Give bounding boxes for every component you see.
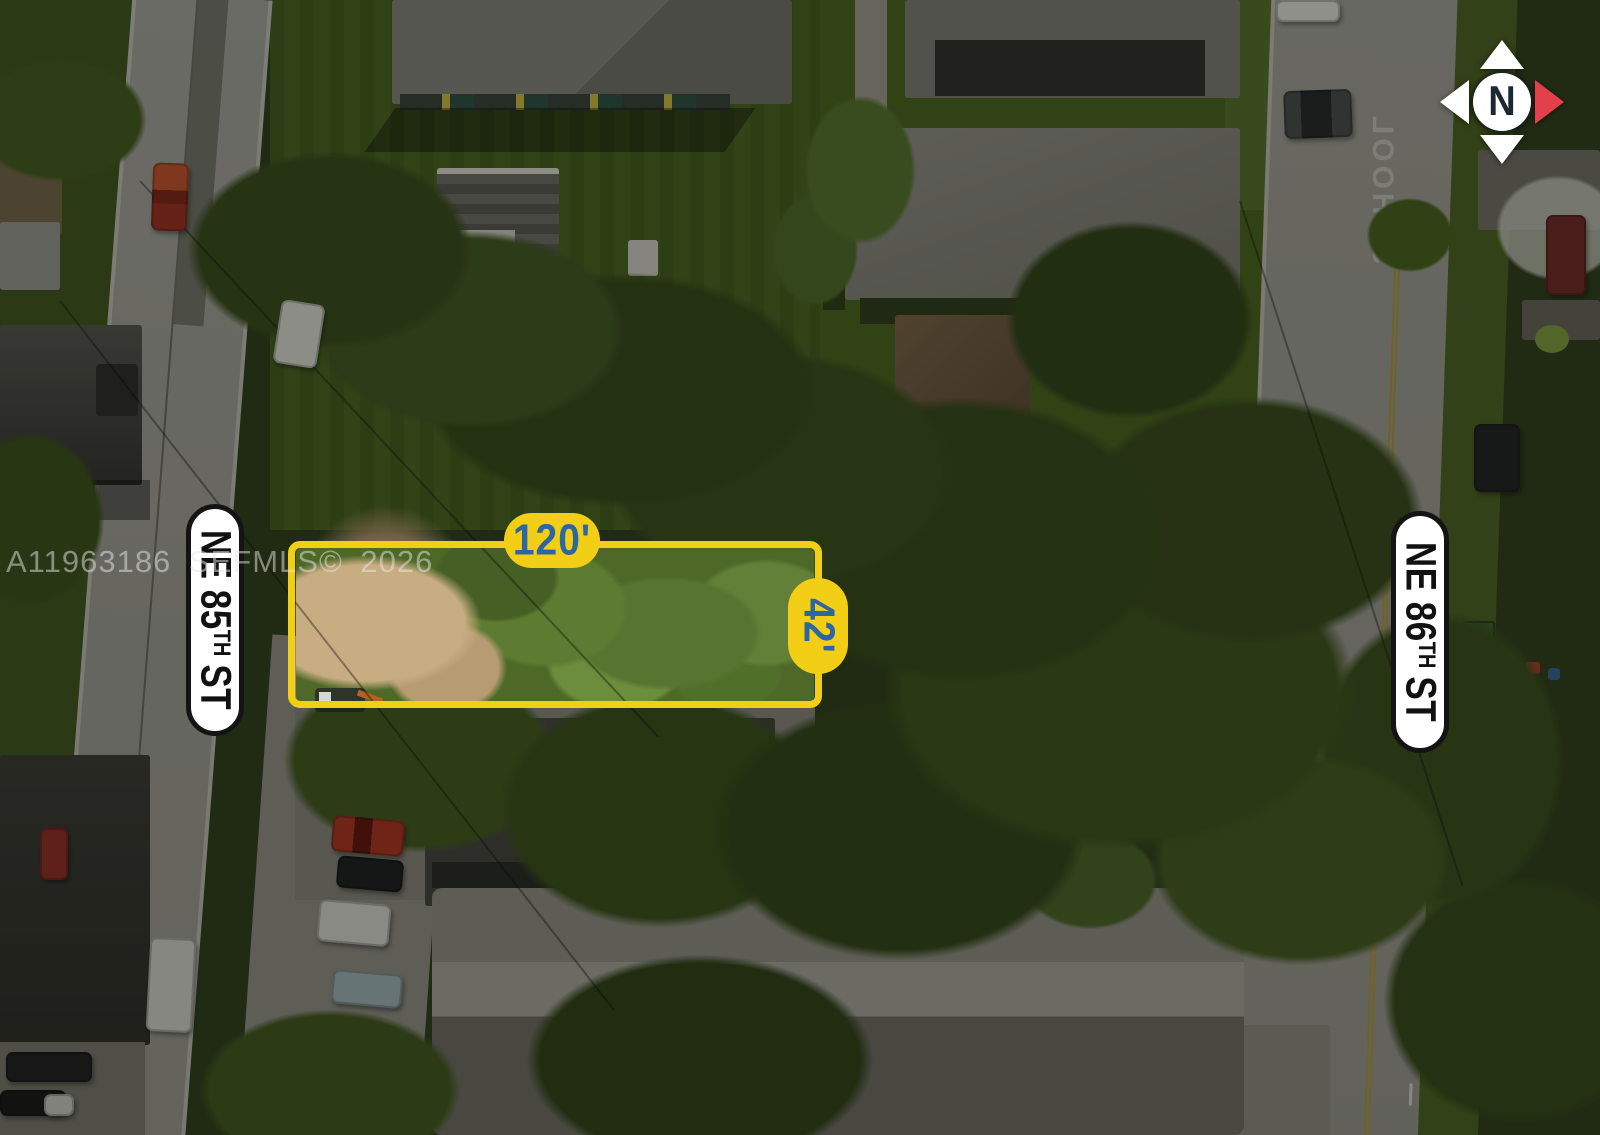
lot-depth-label: 42' [788,578,848,674]
compass-north-arrow-icon [1535,80,1564,124]
compass-letter: N [1488,78,1515,125]
car [1546,215,1586,295]
car [1276,0,1340,22]
aerial-listing-photo: SCHOOL 120' 42' NE 85THST NE 86THST [0,0,1600,1135]
car [336,855,405,893]
car [151,162,189,231]
car [1474,424,1520,492]
car [331,969,404,1009]
north-compass: N [1440,40,1564,164]
car [331,815,406,857]
compass-arrow-icon [1480,135,1524,164]
car [6,1052,92,1082]
car [146,937,197,1033]
compass-arrow-icon [1440,80,1469,124]
street-ordinal: TH [1413,642,1440,669]
street-name: NE 86THST [1396,542,1445,722]
lot-width-value: 120' [513,516,591,565]
mls-watermark: A11963186 SEFMLS© 2026 [6,544,433,580]
car [316,899,391,947]
car [1283,89,1353,139]
car [40,828,68,880]
street-ordinal: TH [208,630,235,657]
street-label-ne-86th: NE 86THST [1391,511,1449,753]
compass-arrow-icon [1480,40,1524,69]
street-label-ne-85th: NE 85THST [186,504,244,736]
lot-width-label: 120' [504,513,600,568]
lot-depth-value: 42' [793,598,842,654]
compass-circle: N [1473,73,1531,131]
car [44,1094,74,1116]
